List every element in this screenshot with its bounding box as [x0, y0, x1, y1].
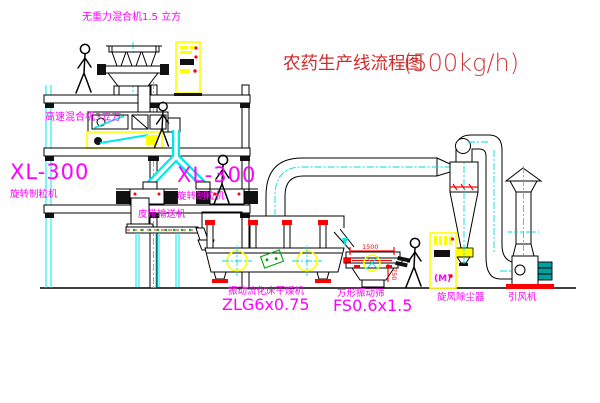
label-fan: 引风机	[508, 291, 537, 303]
title-capacity: (500kg/h)	[403, 49, 519, 77]
label-dryer-model: ZLG6x0.75	[222, 295, 310, 314]
label-granulator-right-name: 旋转制粒机	[177, 190, 225, 202]
label-granulator-right-model: XL-300	[177, 163, 256, 187]
exhaust-stack	[506, 166, 541, 258]
label-cyclone: 旋风除尘器	[437, 291, 485, 303]
label-granulator-left-model: XL-300	[10, 160, 89, 184]
exhaust-duct	[266, 158, 450, 216]
label-belt-conveyor: 皮带输送机	[138, 208, 186, 220]
dimension-750: 750	[390, 268, 398, 280]
belt-conveyor	[126, 227, 214, 287]
flow-diagram: 1500 750 (M) 无重力混合机1.5 立方 高速混合机3立方 XL-30…	[0, 0, 600, 403]
label-mid-mixer: 高速混合机3立方	[45, 110, 121, 123]
person-top-floor	[76, 44, 91, 93]
dimension-1500: 1500	[362, 243, 379, 251]
label-sieve-model: FS0.6x1.5	[333, 296, 412, 315]
mixer-discharge-pipe	[138, 86, 150, 114]
fluid-bed-dryer	[202, 212, 344, 283]
induced-draft-fan	[506, 256, 554, 289]
person-ground-floor	[406, 238, 421, 287]
gravity-free-mixer	[97, 42, 169, 95]
control-cabinet-top	[174, 42, 202, 96]
label-top-mixer: 无重力混合机1.5 立方	[82, 10, 181, 23]
diagram-title: 农药生产线流程图 (500kg/h)	[283, 49, 519, 77]
title-text: 农药生产线流程图	[283, 53, 423, 73]
label-granulator-left-name: 旋转制粒机	[10, 188, 58, 200]
square-vibrating-sieve: 1500 750	[334, 229, 411, 287]
cabinet-motor-marking: (M)	[434, 274, 451, 284]
diagram-canvas: 1500 750 (M) 无重力混合机1.5 立方 高速混合机3立方 XL-30…	[0, 0, 600, 403]
control-cabinet-ground: (M)	[430, 233, 456, 288]
